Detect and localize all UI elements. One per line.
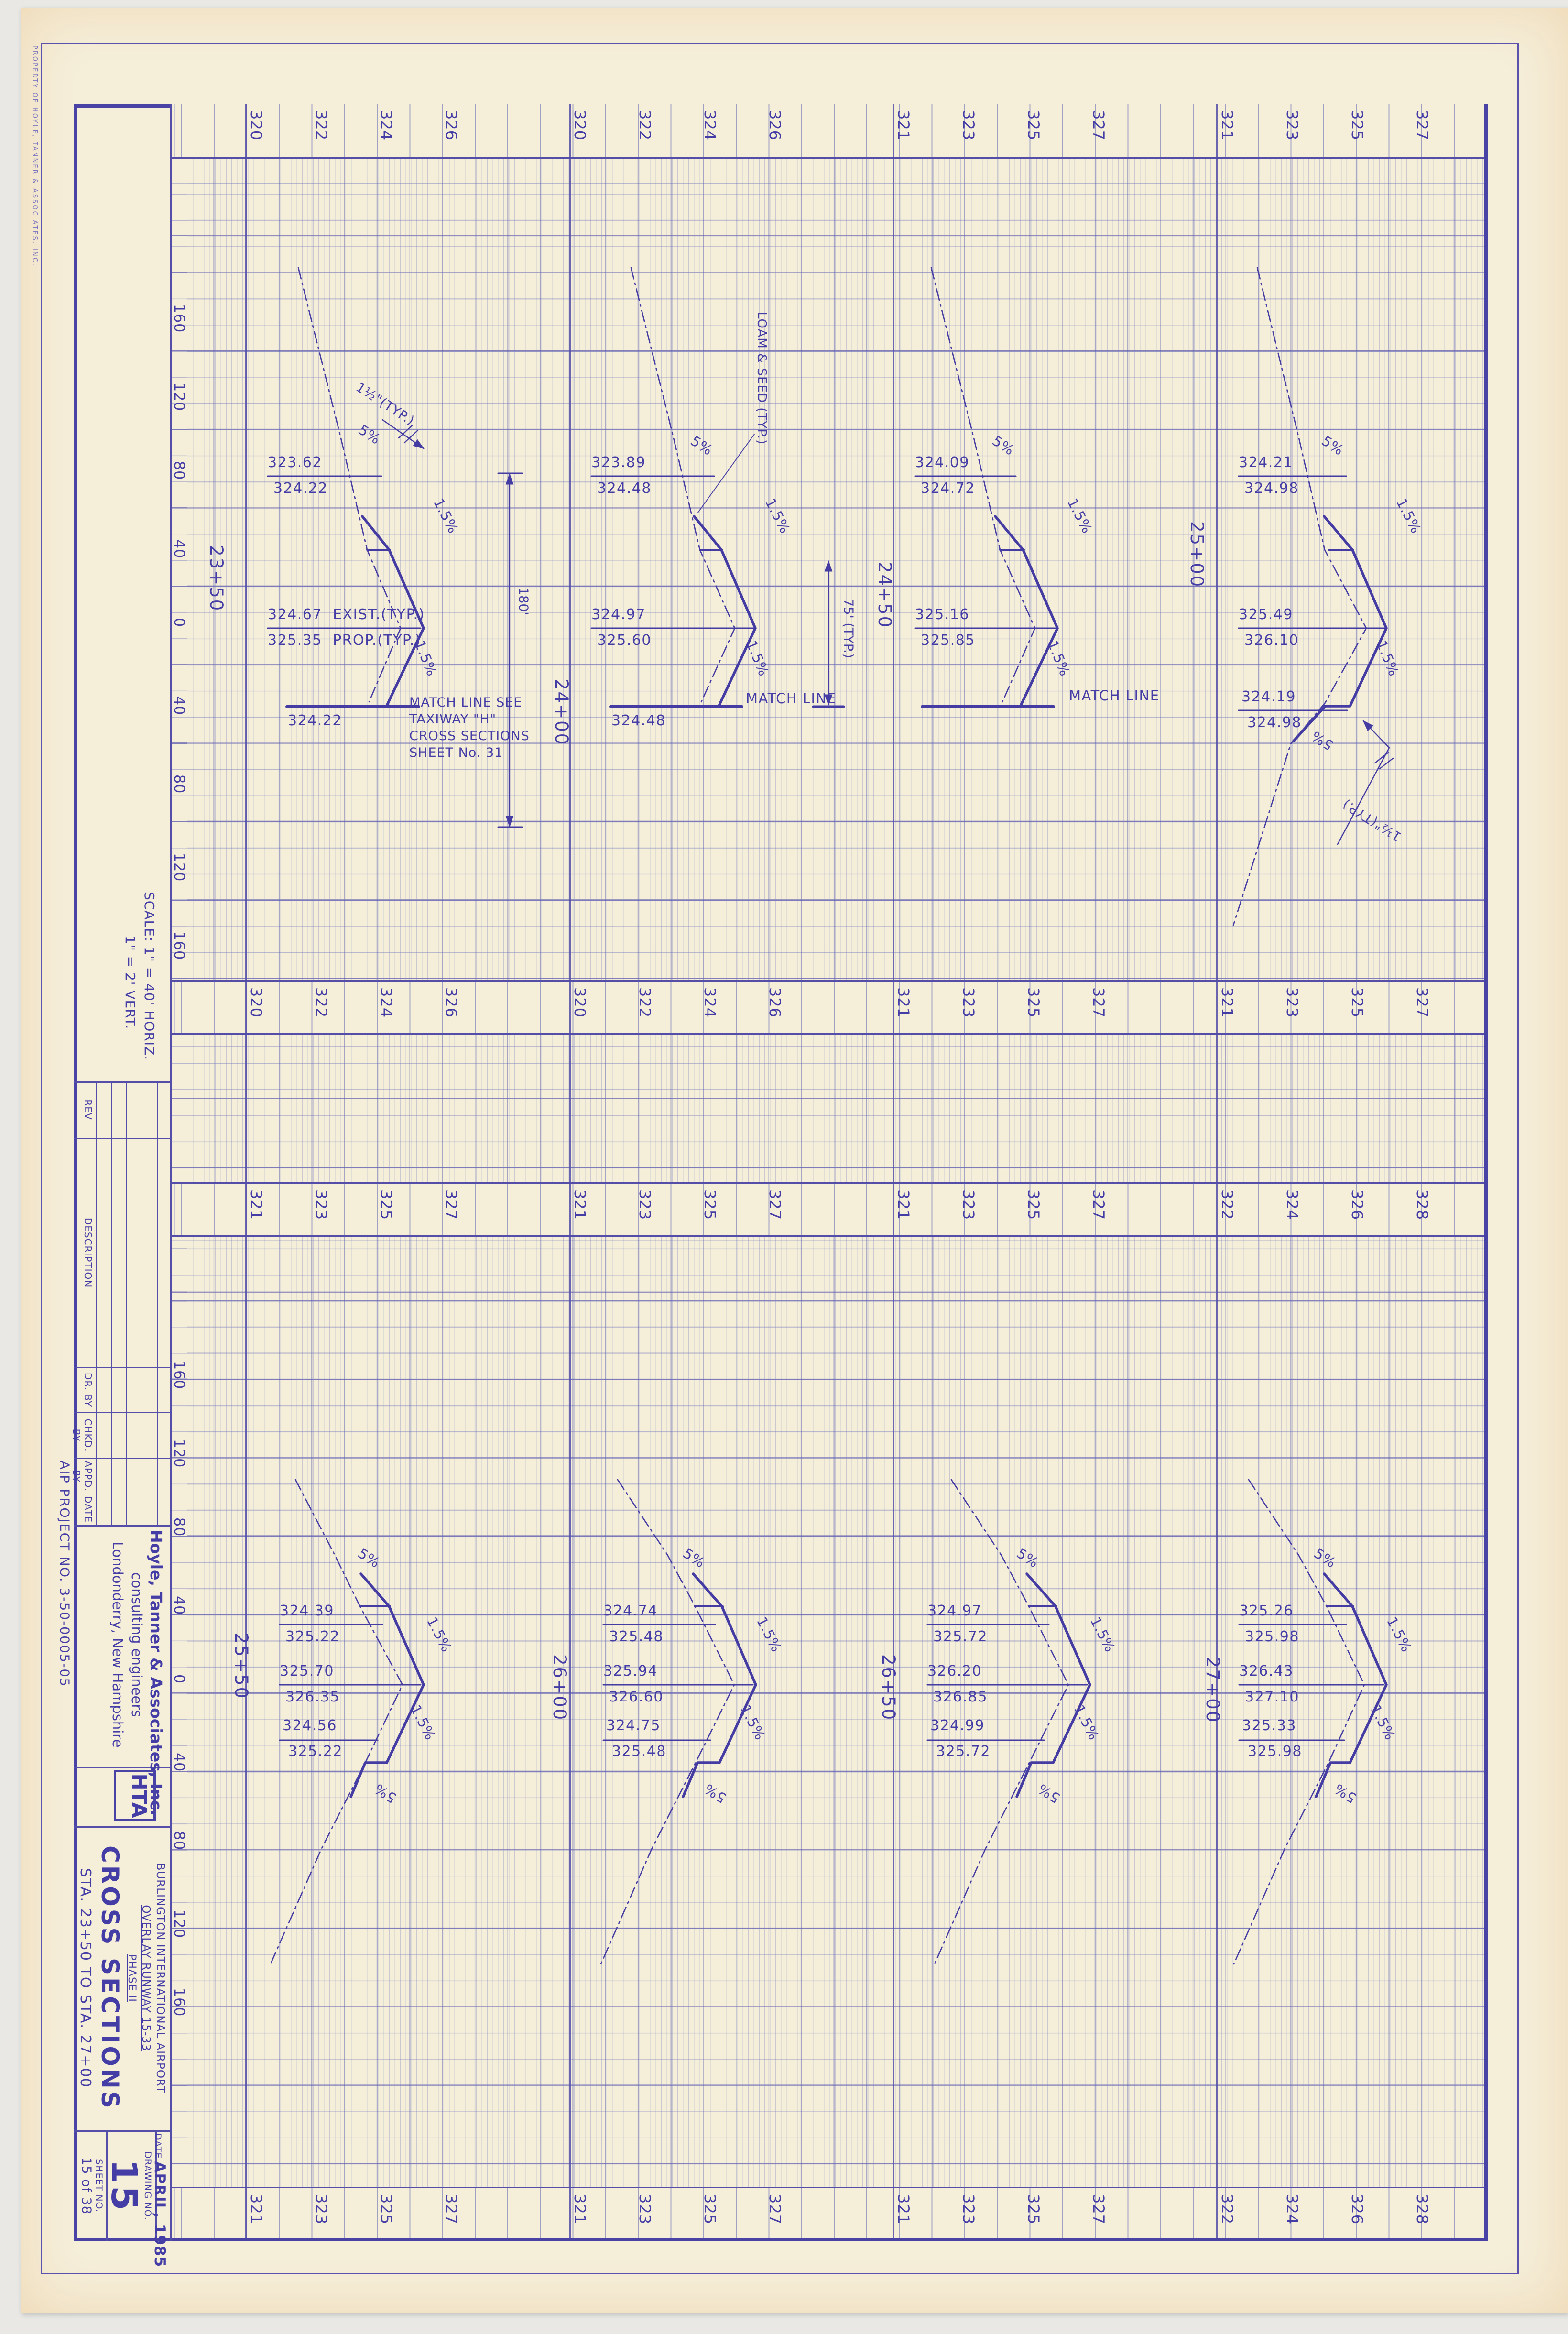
value: 325.35 <box>268 632 322 649</box>
elev-bot-exist: 324.75 <box>606 1717 661 1734</box>
station-label-26-50: 26+50 <box>878 1654 899 1769</box>
elev-bot-exist: 325.33 <box>1242 1717 1296 1734</box>
dim-text-180: 180' <box>516 587 531 664</box>
elev-top-exist: 323.62 <box>268 454 322 471</box>
elev-top-exist: 324.39 <box>280 1603 334 1619</box>
elev-top-prop: 325.98 <box>1245 1628 1299 1645</box>
elev-bot-exist: 324.19 <box>1241 688 1296 705</box>
elev-bot-prop: 325.48 <box>612 1743 666 1760</box>
loam-seed-callout: LOAM & SEED (TYP.) <box>754 312 769 441</box>
elev-cl-exist: 325.49 <box>1239 606 1293 623</box>
elev-bot-prop: 325.72 <box>936 1743 991 1760</box>
station-label-27-00: 27+00 <box>1202 1657 1223 1771</box>
match-note-line: MATCH LINE SEE <box>409 694 530 711</box>
elev-bot-exist: 324.56 <box>283 1717 337 1734</box>
elev-top-prop: 325.22 <box>285 1628 340 1645</box>
elev-cl-prop: 326.10 <box>1244 632 1299 649</box>
match-note-line: TAXIWAY "H" <box>409 711 530 728</box>
elev-top-exist: 324.97 <box>927 1603 982 1619</box>
elev-cl-exist: 325.70 <box>280 1663 334 1680</box>
exist-note: EXIST.(TYP.) <box>333 606 425 623</box>
elev-cl-exist: 324.97 <box>591 606 646 623</box>
elev-cl-exist: 325.94 <box>603 1663 658 1680</box>
match-line-label: MATCH LINE <box>746 690 837 707</box>
elev-top-prop: 325.48 <box>609 1628 664 1645</box>
elev-cl-prop: 326.35 <box>285 1689 340 1705</box>
elev-top-prop: 324.48 <box>597 480 652 497</box>
existing-ground-25-00 <box>1233 268 1366 925</box>
elev-cl-prop: 327.10 <box>1245 1689 1299 1705</box>
elev-cl-exist: 325.16 <box>915 606 969 623</box>
station-label-24-50: 24+50 <box>874 562 895 676</box>
proposed-grade-24-00 <box>694 516 755 706</box>
prop-note: PROP.(TYP.) <box>333 632 421 649</box>
station-label-25-50: 25+50 <box>231 1633 251 1747</box>
station-label-23-50: 23+50 <box>206 545 227 660</box>
value: 324.67 <box>268 606 322 623</box>
elev-top-prop: 324.22 <box>273 480 328 497</box>
elev-top-exist: 323.89 <box>591 454 646 471</box>
elev-match-value: 324.48 <box>611 712 666 729</box>
elev-top-exist: 324.09 <box>915 454 969 471</box>
elev-top-prop: 324.98 <box>1244 480 1299 497</box>
elev-cl-prop: 325.85 <box>921 632 975 649</box>
elev-bot-prop: 325.22 <box>288 1743 343 1760</box>
elev-cl-prop: 326.60 <box>609 1689 664 1705</box>
match-note-line: SHEET No. 31 <box>409 744 530 761</box>
station-label-24-00: 24+00 <box>551 679 572 794</box>
elev-bot-prop: 324.98 <box>1247 714 1302 731</box>
elev-cl-exist: 326.43 <box>1239 1663 1294 1680</box>
elev-top-exist: 324.21 <box>1239 454 1293 471</box>
elev-top-prop: 324.72 <box>921 480 975 497</box>
match-note-line: CROSS SECTIONS <box>409 728 530 744</box>
elev-top-prop: 325.72 <box>933 1628 988 1645</box>
elev-cl-exist: 326.20 <box>927 1663 982 1680</box>
station-label-25-00: 25+00 <box>1187 521 1207 636</box>
match-note-23-50: MATCH LINE SEE TAXIWAY "H" CROSS SECTION… <box>409 694 530 761</box>
elev-bot-prop: 325.98 <box>1248 1743 1302 1760</box>
dim-text-75: 75' (TYP.) <box>841 599 856 709</box>
elev-top-exist: 325.26 <box>1239 1603 1294 1619</box>
elev-match-value: 324.22 <box>288 712 342 729</box>
cross-section-linework <box>0 0 1568 2334</box>
match-line-label: MATCH LINE <box>1069 687 1160 704</box>
elev-cl-prop: 325.60 <box>597 632 652 649</box>
station-label-26-00: 26+00 <box>549 1654 570 1769</box>
elev-cl-prop: 326.85 <box>933 1689 988 1705</box>
elev-cl-prop: 325.35 PROP.(TYP.) <box>268 632 421 649</box>
elev-bot-exist: 324.99 <box>930 1717 985 1734</box>
callout-ticks <box>1375 753 1393 769</box>
drawing-sheet: PROPERTY OF HOYLE, TANNER & ASSOCIATES, … <box>0 0 1568 2334</box>
elev-cl-exist: 324.67 EXIST.(TYP.) <box>268 606 425 623</box>
proposed-grade-24-50 <box>995 516 1057 706</box>
elev-top-exist: 324.74 <box>603 1603 658 1619</box>
